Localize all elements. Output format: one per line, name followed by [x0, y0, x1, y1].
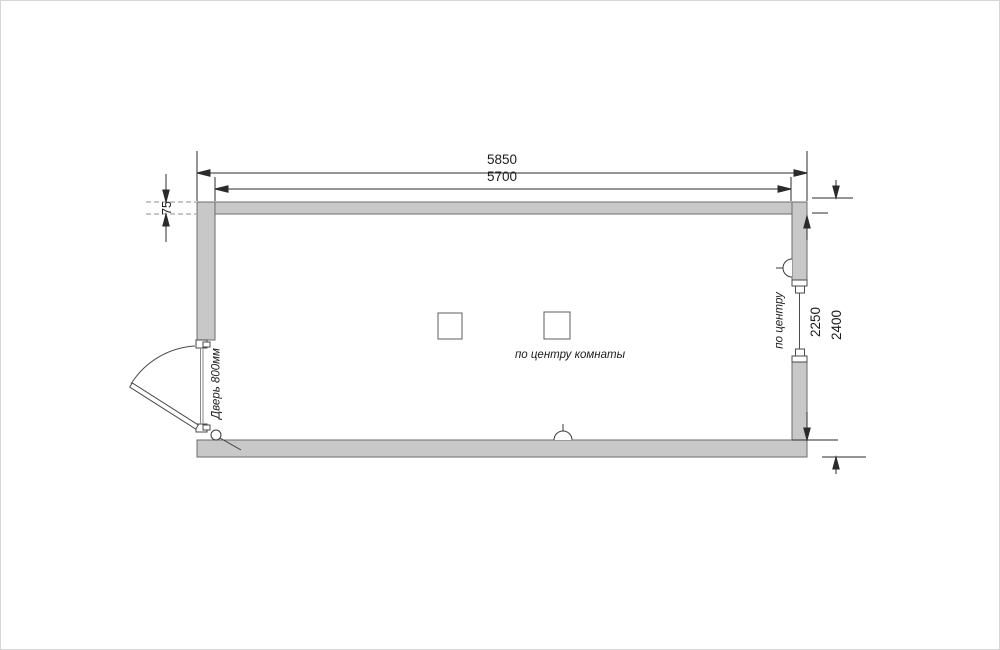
dim-75-label: 75 — [160, 194, 174, 222]
door-swing-arc — [131, 346, 195, 384]
bottom-wall — [197, 440, 807, 457]
door-jamb-top-nub — [203, 342, 210, 347]
window-jamb-bottom — [792, 356, 807, 362]
electrical-symbols — [211, 259, 792, 450]
floor-plan-drawing — [0, 0, 1000, 650]
ceiling-light-left — [438, 313, 462, 339]
dim-2400-label: 2400 — [830, 305, 844, 345]
socket-right-icon — [776, 259, 792, 277]
door — [130, 340, 210, 432]
door-label: Дверь 800мм — [211, 344, 224, 424]
dim-5700-label: 5700 — [452, 170, 552, 184]
dim-5850-label: 5850 — [452, 153, 552, 167]
window-frame-bottom — [796, 349, 805, 356]
dim-5700-line — [215, 186, 791, 192]
dimension-lines — [146, 151, 866, 474]
window-jamb-top — [792, 280, 807, 286]
floor-plan-canvas: 5850 5700 75 2250 2400 по центру Дверь 8… — [0, 0, 1000, 650]
door-leaf — [130, 383, 199, 429]
door-jamb-bottom-nub — [203, 425, 210, 430]
right-wall-upper — [792, 202, 807, 280]
ceiling-lights — [438, 312, 570, 339]
dim-2250-label: 2250 — [809, 302, 823, 342]
window — [792, 280, 807, 362]
socket-bottom-icon — [554, 424, 572, 440]
top-wall — [197, 202, 807, 214]
left-wall — [197, 202, 215, 340]
window-center-label: по центру — [774, 286, 787, 356]
ceiling-light-right — [544, 312, 570, 339]
walls — [197, 202, 807, 457]
window-frame-top — [796, 286, 805, 293]
room-center-label: по центру комнаты — [510, 349, 630, 362]
